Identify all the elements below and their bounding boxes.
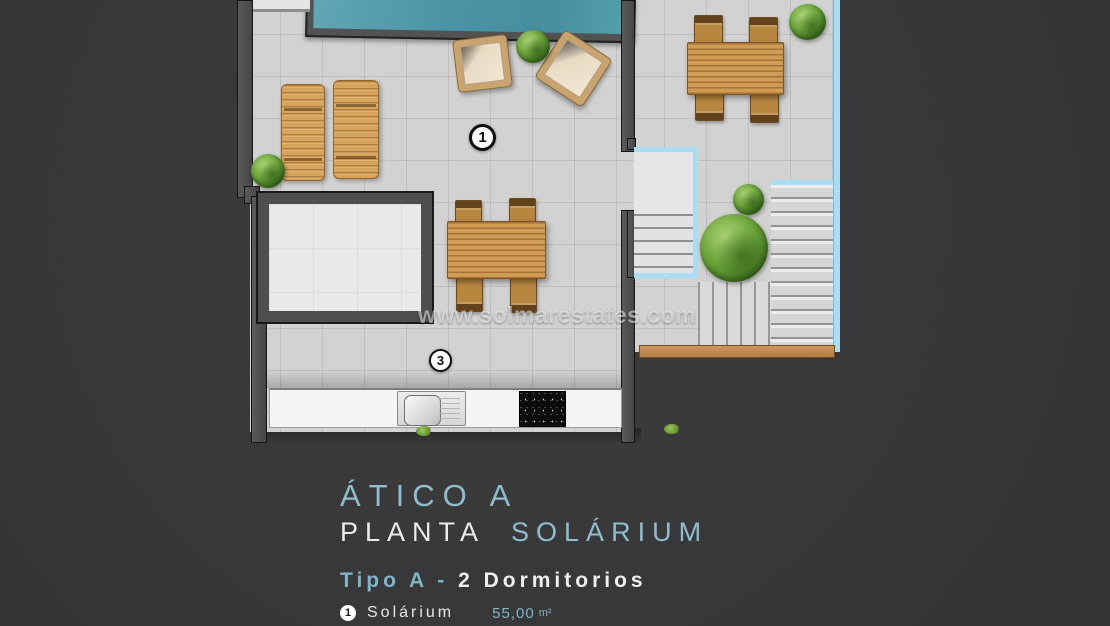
area-marker-3: 3 — [429, 349, 452, 372]
page-subtitle: PLANTASOLÁRIUM — [340, 517, 708, 548]
interior-room — [256, 191, 434, 324]
unit-type-line: Tipo A - 2 Dormitorios — [340, 569, 708, 593]
pool — [305, 0, 636, 43]
plant — [733, 184, 764, 215]
subtitle-plan-word: PLANTA — [340, 517, 485, 547]
armchair-cushion — [460, 42, 505, 86]
plant — [251, 154, 285, 188]
wood-deck-edge — [639, 345, 835, 358]
legend-area-unit: m² — [539, 607, 552, 619]
pool-water — [313, 0, 628, 34]
stair-steps — [634, 214, 693, 273]
plant — [700, 214, 768, 282]
kitchen-sink — [397, 391, 466, 426]
sun-lounger — [281, 84, 325, 181]
legend-row: 1 Solárium 55,00 m² — [340, 604, 708, 622]
unit-type-accent: Tipo A - — [340, 569, 448, 592]
floorplan-image: 1 3 www.solmarestates.com ÁTICO A PLANTA… — [0, 0, 1110, 626]
dining-chair — [695, 91, 724, 121]
glass-railing — [833, 0, 840, 352]
page-title: ÁTICO A — [340, 478, 708, 514]
cooktop — [519, 391, 566, 427]
subtitle-plan-accent: SOLÁRIUM — [511, 517, 708, 547]
sun-lounger — [333, 80, 379, 179]
watermark: www.solmarestates.com — [418, 302, 696, 329]
dining-chair — [750, 93, 779, 123]
legend-number-icon: 1 — [340, 605, 356, 621]
staircase — [771, 180, 833, 348]
area-marker-1: 1 — [469, 124, 496, 151]
wall-right-upper — [621, 0, 635, 152]
legend-label: Solárium — [367, 604, 454, 622]
stair-steps-landing — [698, 282, 772, 348]
armchair — [452, 34, 513, 93]
sink-drainer — [439, 398, 460, 422]
unit-type-rest: 2 Dormitorios — [458, 569, 647, 592]
plant-sprig — [664, 424, 680, 434]
plant — [789, 4, 826, 40]
caption: ÁTICO A PLANTASOLÁRIUM Tipo A - 2 Dormit… — [340, 478, 708, 622]
plant-sprig — [416, 426, 432, 436]
interior-room-floor — [269, 204, 421, 311]
sink-basin — [404, 395, 441, 426]
stairwell-opening — [634, 147, 698, 278]
wall-ledge — [252, 0, 310, 12]
dining-table — [447, 221, 546, 279]
legend-area-value: 55,00 — [492, 605, 535, 622]
dining-table — [687, 42, 784, 95]
plant — [516, 30, 550, 63]
counter-shadow — [266, 370, 622, 388]
